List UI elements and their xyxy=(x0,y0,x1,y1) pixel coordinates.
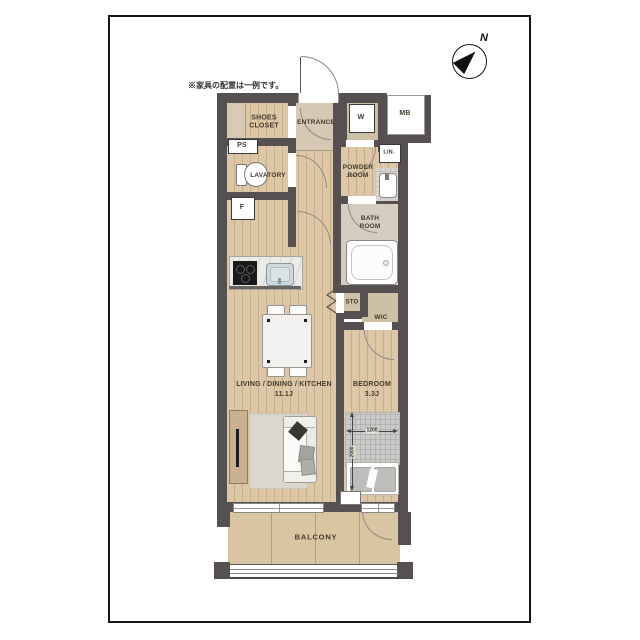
wall-ldk-bedroom xyxy=(336,293,344,502)
balcony-stub-left xyxy=(217,512,230,527)
ldk-window xyxy=(233,503,324,513)
dim-arrow-up xyxy=(350,412,354,417)
storage-label: STO xyxy=(346,299,359,306)
refrigerator-label: F xyxy=(240,204,244,212)
bath-room-label: BATH ROOM xyxy=(355,215,385,231)
entrance-door-leaf xyxy=(300,57,301,93)
bed-width-dimension: 1200 xyxy=(365,429,378,434)
wall-niche-box xyxy=(340,491,361,505)
floor-plan: N ※家具の配置は一例です。 xyxy=(0,0,640,640)
bedroom-window xyxy=(361,503,395,513)
cooktop-icon xyxy=(233,261,257,285)
north-label: N xyxy=(480,32,488,44)
kitchen-sink-icon xyxy=(266,263,294,286)
dim-arrow-down xyxy=(350,486,354,491)
ldk-label: LIVING / DINING / KITCHEN xyxy=(236,381,332,389)
powder-door-opening xyxy=(346,140,374,147)
faucet-icon xyxy=(385,174,389,180)
bedroom-label: BEDROOM xyxy=(353,381,391,389)
dim-arrow-right xyxy=(393,429,398,433)
bifold-door-icon xyxy=(324,288,337,314)
sofa-icon xyxy=(283,416,317,483)
tv-icon xyxy=(236,429,239,467)
balcony-railing xyxy=(230,564,398,579)
wic-label: WIC xyxy=(374,314,387,322)
lavatory-label: LAVATORY xyxy=(250,172,286,180)
furniture-note: ※家具の配置は一例です。 xyxy=(188,80,283,91)
pipe-shaft-label: PS xyxy=(237,142,247,150)
shoes-closet-label: SHOES CLOSET xyxy=(241,115,287,132)
bedroom-size-label: 3.3J xyxy=(365,391,379,399)
lavatory-door-opening xyxy=(288,153,296,187)
closet-door-opening xyxy=(288,106,296,138)
linen-label: LIN. xyxy=(383,150,394,157)
dim-arrow-left xyxy=(346,429,351,433)
bath-door-opening xyxy=(348,196,376,204)
bed-depth-dimension: 2000 xyxy=(351,445,356,458)
balcony-label: BALCONY xyxy=(295,533,338,542)
bathtub-icon xyxy=(346,240,398,285)
compass: N xyxy=(448,32,500,84)
tv-board xyxy=(229,410,248,484)
storage-door-opening xyxy=(336,293,344,313)
counter-front-edge xyxy=(229,286,301,289)
balcony-stub-right xyxy=(398,512,411,545)
wall-left xyxy=(217,93,227,512)
ldk-size-label: 11.1J xyxy=(275,391,293,399)
meter-box-label: MB xyxy=(399,110,410,118)
powder-room-label: POWDER ROOM xyxy=(337,164,379,180)
entrance-opening xyxy=(298,93,339,103)
dining-table xyxy=(262,314,312,368)
bedroom-door-opening xyxy=(364,322,392,330)
entrance-label: ENTRANCE xyxy=(297,119,335,127)
washer-label: W xyxy=(358,114,365,122)
